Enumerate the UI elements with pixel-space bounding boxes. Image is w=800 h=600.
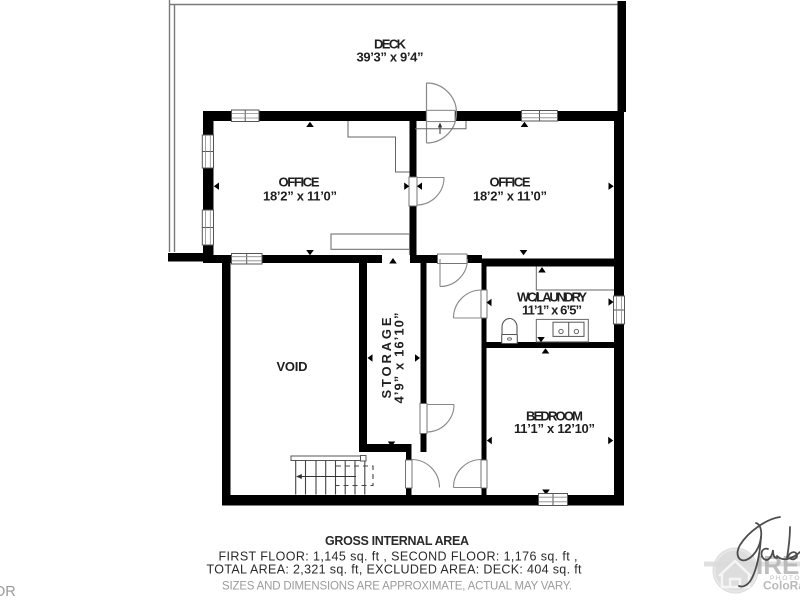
svg-text:11’1” x 12’10”: 11’1” x 12’10” [514, 421, 595, 436]
svg-text:TOTAL AREA: 2,321 sq. ft, EXCL: TOTAL AREA: 2,321 sq. ft, EXCLUDED AREA:… [207, 563, 583, 577]
svg-text:39’3” x 9’4”: 39’3” x 9’4” [357, 50, 424, 65]
svg-text:ColoRado: ColoRado [763, 579, 800, 593]
svg-text:GROSS INTERNAL AREA: GROSS INTERNAL AREA [325, 534, 469, 548]
svg-text:18’2” x 11’0”: 18’2” x 11’0” [263, 189, 337, 204]
svg-text:4’9” x 16’10”: 4’9” x 16’10” [392, 313, 407, 404]
svg-text:OFFICE: OFFICE [279, 175, 320, 190]
svg-text:VOID: VOID [277, 359, 308, 374]
svg-text:OR: OR [0, 584, 16, 600]
svg-text:FIRST FLOOR: 1,145 sq. ft , SE: FIRST FLOOR: 1,145 sq. ft , SECOND FLOOR… [219, 550, 578, 564]
svg-text:SIZES AND DIMENSIONS ARE APPRO: SIZES AND DIMENSIONS ARE APPROXIMATE, AC… [222, 581, 572, 593]
svg-text:11’1” x 6’5”: 11’1” x 6’5” [522, 303, 582, 318]
svg-text:OFFICE: OFFICE [490, 175, 531, 190]
svg-text:18’2” x 11’0”: 18’2” x 11’0” [473, 189, 547, 204]
